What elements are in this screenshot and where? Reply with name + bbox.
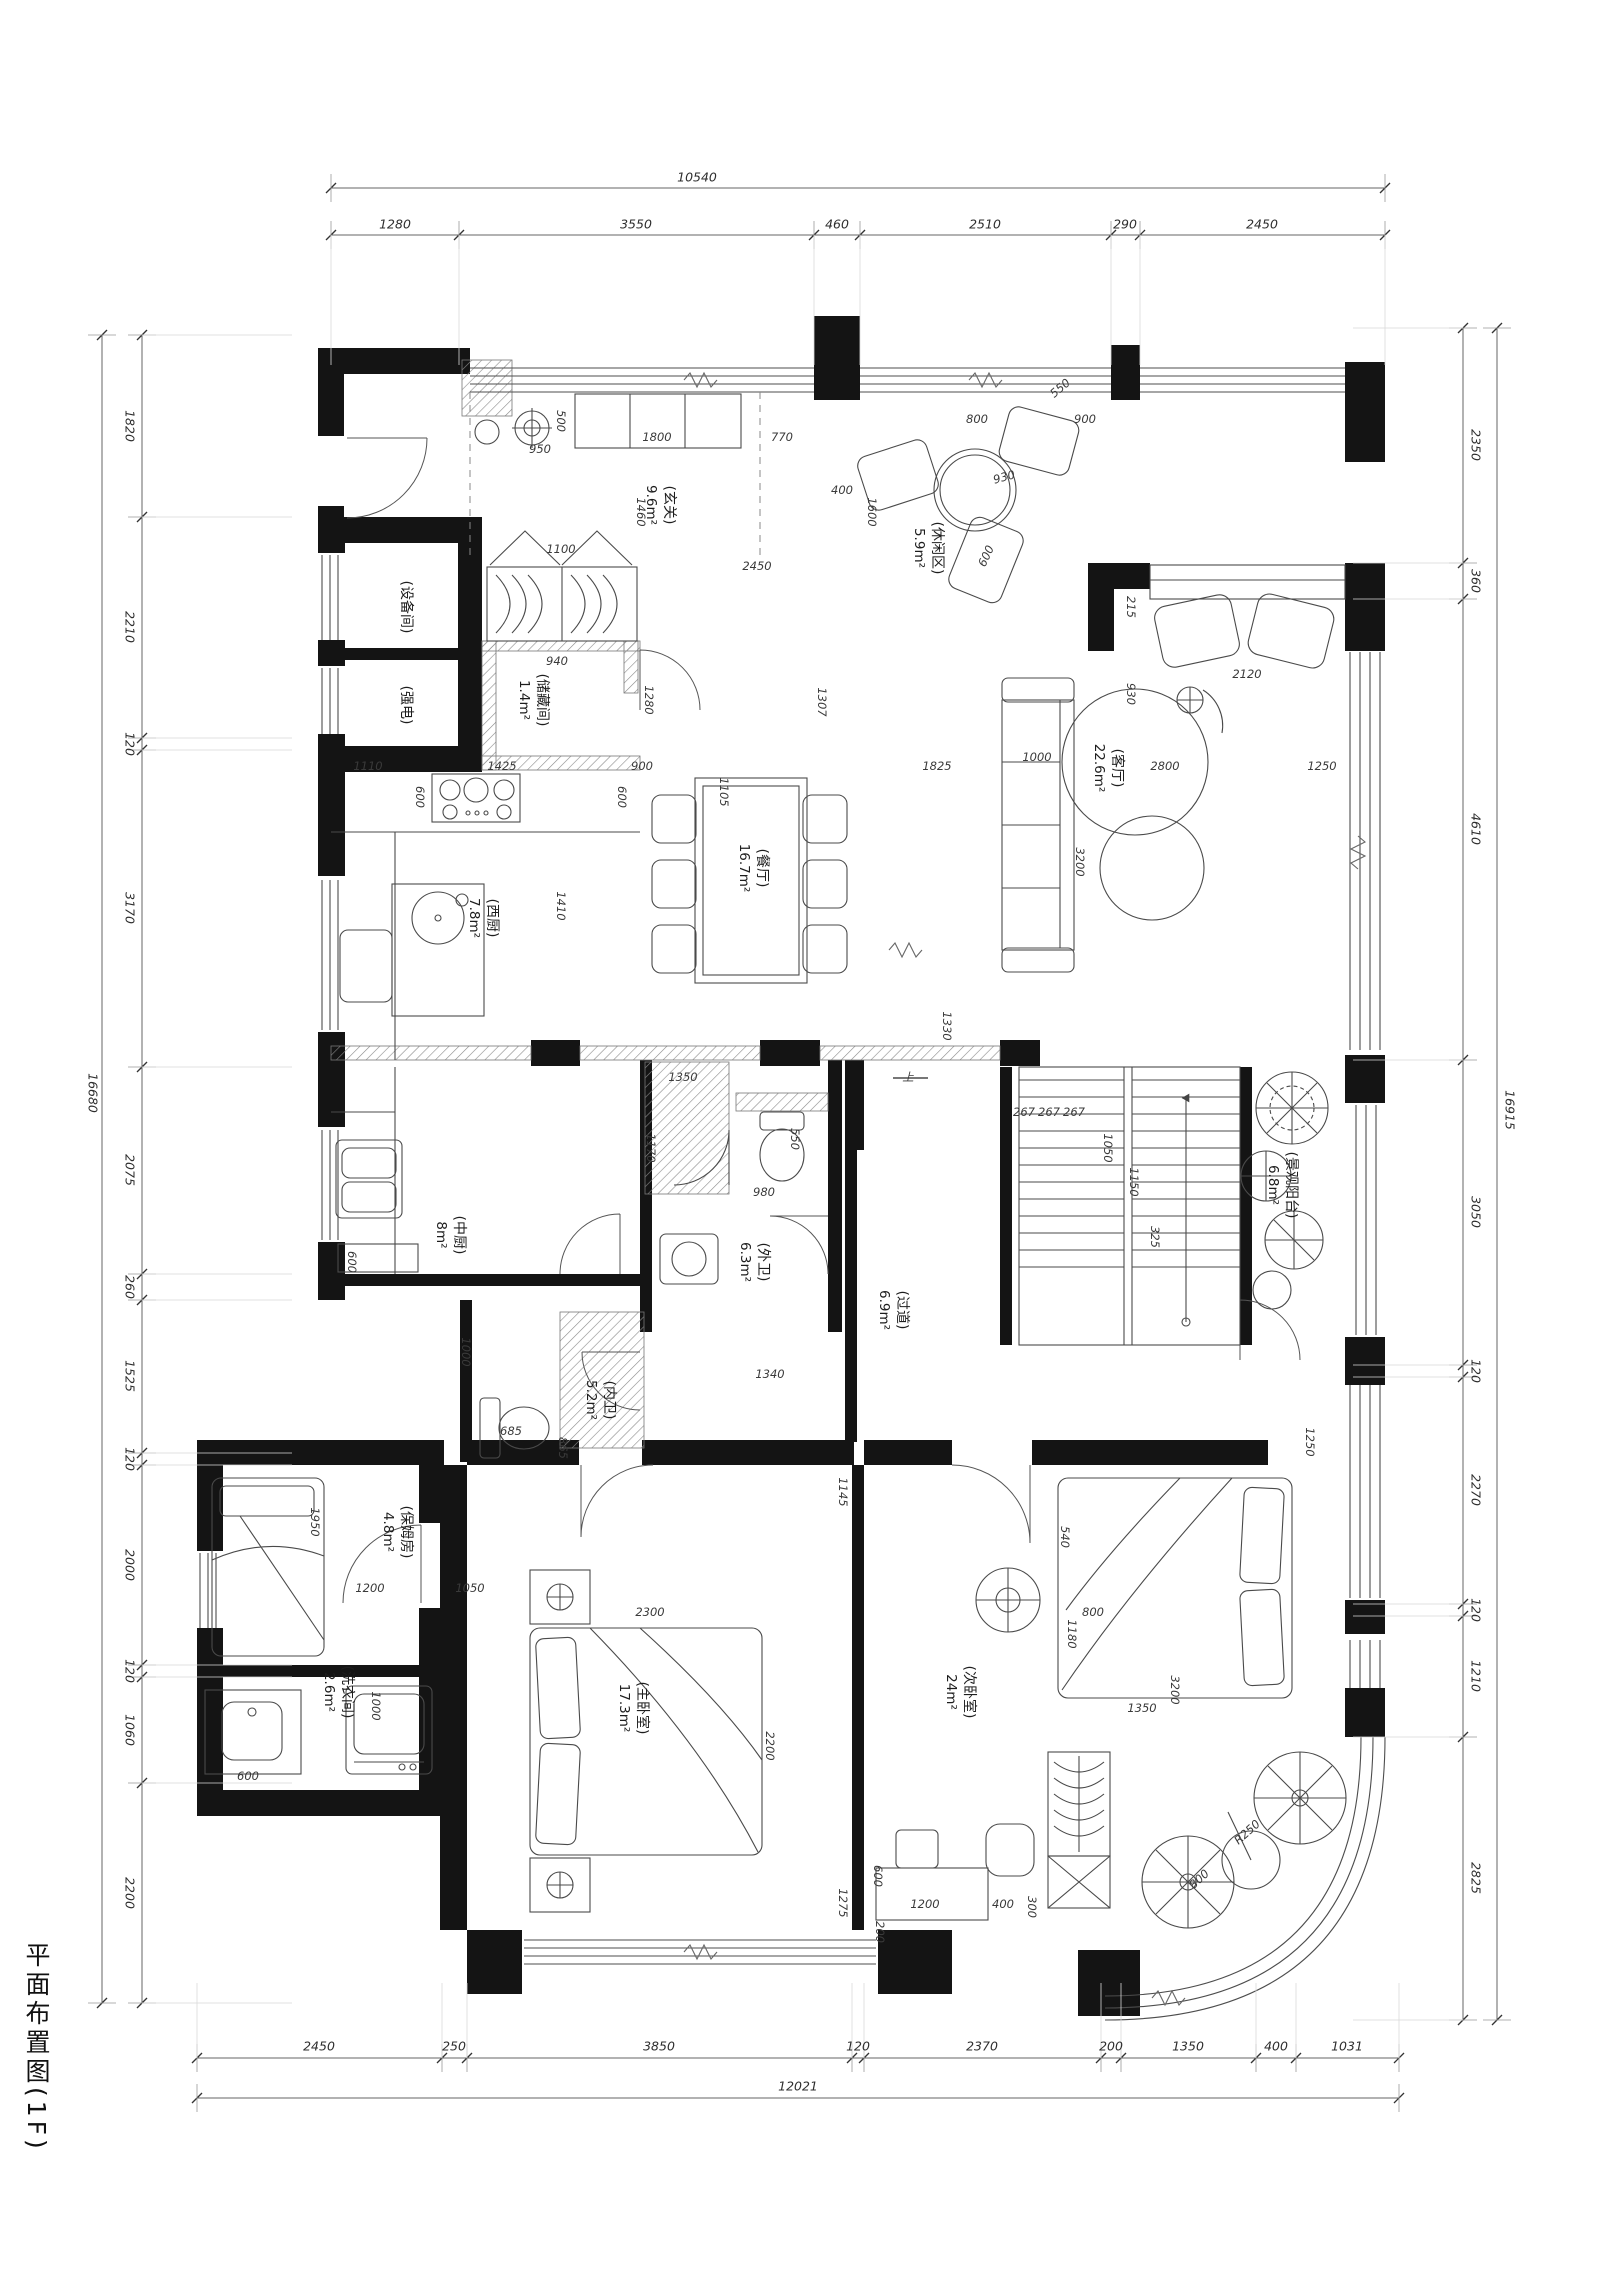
room-label-dining: (餐厅)16.7m²: [736, 844, 770, 893]
dimension-chains: [88, 174, 1511, 2112]
room-label-west-kitchen: (西厨)7.8m²: [466, 898, 500, 938]
bay-window-seat: [1150, 565, 1345, 599]
room-area: 22.6m²: [1091, 744, 1108, 793]
room-area: 6.8m²: [1265, 1152, 1282, 1219]
room-name: (餐厅): [753, 844, 771, 893]
room-name: (保姆房): [397, 1506, 415, 1559]
room-name: (次卧室): [960, 1666, 978, 1719]
room-label-inner-bath: (内卫)5.2m²: [583, 1380, 617, 1420]
room-label-chinese-kitchen: (中厨)8m²: [433, 1216, 467, 1255]
room-label-electrical: (强电): [396, 686, 414, 725]
structural-walls: [197, 316, 1385, 2016]
entry-cabinet: [575, 394, 741, 448]
desk-chair: [986, 1824, 1034, 1876]
toilet: [760, 1129, 804, 1181]
nanny-bed: [212, 1478, 324, 1656]
room-area: 6.9m²: [876, 1290, 893, 1330]
sofa-arm: [1002, 678, 1074, 702]
living-rug: [1062, 689, 1208, 835]
room-area: 5.9m²: [911, 522, 928, 575]
room-label-outer-bath: (外卫)6.3m²: [737, 1242, 771, 1282]
kitchen-sink: [340, 930, 392, 1002]
room-name: (主卧室): [633, 1682, 651, 1735]
room-name: (客厅): [1108, 744, 1126, 793]
second-bed: [1058, 1478, 1292, 1698]
room-name: (西厨): [483, 898, 501, 938]
room-area: 6.3m²: [737, 1242, 754, 1282]
room-area: 2.6m²: [321, 1666, 338, 1719]
room-name: (设备间): [396, 581, 414, 634]
room-label-nanny-room: (保姆房)4.8m²: [380, 1506, 414, 1559]
room-label-view-balcony: (景观阳台)6.8m²: [1265, 1152, 1299, 1219]
windows: [200, 368, 1385, 2020]
room-name: (休闲区): [928, 522, 946, 575]
room-area: 17.3m²: [616, 1682, 633, 1735]
room-area: 24m²: [943, 1666, 960, 1719]
desk: [876, 1868, 988, 1920]
room-area: 5.2m²: [583, 1380, 600, 1420]
furniture: [205, 394, 1346, 1928]
leisure-chair: [855, 437, 941, 513]
room-area: 16.7m²: [736, 844, 753, 893]
room-area: 1.4m²: [516, 674, 533, 727]
room-name: (外卫): [754, 1242, 772, 1282]
break-symbols: [684, 373, 1365, 2005]
toilet-tank: [760, 1112, 804, 1130]
room-label-entry: (玄关)9.6m²: [643, 485, 677, 525]
room-name: (内卫): [600, 1380, 618, 1420]
staircase: [1019, 1067, 1240, 1345]
room-label-storage: (储藏间)1.4m²: [516, 674, 550, 727]
room-name: (强电): [396, 686, 414, 725]
bay-chair: [1246, 591, 1337, 670]
plan-title: 平面布置图(1F): [18, 1942, 54, 2153]
room-name: (过道): [893, 1290, 911, 1330]
room-label-master-bedroom: (主卧室)17.3m²: [616, 1682, 650, 1735]
double-sink: [336, 1140, 402, 1218]
room-label-living: (客厅)22.6m²: [1091, 744, 1125, 793]
room-label-laundry: (洗衣间)2.6m²: [321, 1666, 355, 1719]
room-label-equipment: (设备间): [396, 581, 414, 634]
floorplan-linework: [0, 0, 1600, 2290]
room-area: 8m²: [433, 1216, 450, 1255]
room-area: 4.8m²: [380, 1506, 397, 1559]
room-name: (玄关): [660, 485, 678, 525]
room-area: 9.6m²: [643, 485, 660, 525]
room-name: (洗衣间): [338, 1666, 356, 1719]
room-name: (景观阳台): [1282, 1152, 1300, 1219]
room-name: (储藏间): [533, 674, 551, 727]
floorplan-canvas: 平面布置图(1F) (玄关)9.6m²(休闲区)5.9m²(客厅)22.6m²(…: [0, 0, 1600, 2290]
leisure-chair: [997, 405, 1081, 478]
room-name: (中厨): [450, 1216, 468, 1255]
dining-chair: [652, 795, 696, 843]
bay-chair: [1152, 593, 1241, 670]
room-label-corridor: (过道)6.9m²: [876, 1290, 910, 1330]
room-label-leisure: (休闲区)5.9m²: [911, 522, 945, 575]
room-area: 7.8m²: [466, 898, 483, 938]
room-label-second-bedroom: (次卧室)24m²: [943, 1666, 977, 1719]
leisure-chair: [946, 514, 1026, 605]
master-bed: [530, 1628, 762, 1855]
